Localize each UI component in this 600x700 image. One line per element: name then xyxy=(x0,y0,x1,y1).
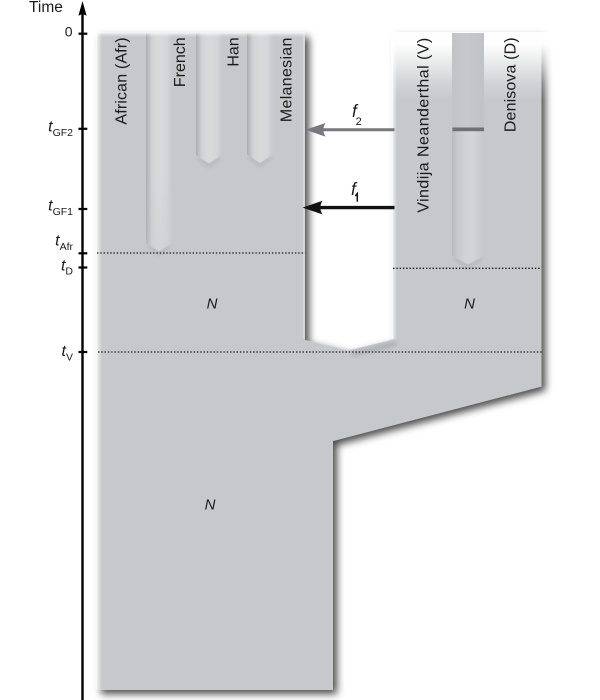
svg-text:Time: Time xyxy=(29,0,63,16)
svg-text:Han: Han xyxy=(226,37,243,66)
svg-text:African (Afr): African (Afr) xyxy=(114,37,131,124)
svg-text:N: N xyxy=(464,296,475,313)
svg-text:tV: tV xyxy=(62,343,73,363)
svg-text:Denisova (D): Denisova (D) xyxy=(503,37,520,132)
svg-text:tAfr: tAfr xyxy=(55,233,73,253)
svg-text:Melanesian: Melanesian xyxy=(279,37,296,122)
svg-text:Vindija Neanderthal (V): Vindija Neanderthal (V) xyxy=(416,37,433,212)
svg-text:N: N xyxy=(205,497,216,514)
svg-text:tD: tD xyxy=(61,257,73,277)
svg-text:French: French xyxy=(172,37,189,87)
svg-text:tGF1: tGF1 xyxy=(48,198,73,218)
svg-text:tGF2: tGF2 xyxy=(48,119,73,139)
svg-text:2: 2 xyxy=(356,116,362,128)
svg-text:N: N xyxy=(207,296,218,313)
svg-text:0: 0 xyxy=(65,24,73,40)
